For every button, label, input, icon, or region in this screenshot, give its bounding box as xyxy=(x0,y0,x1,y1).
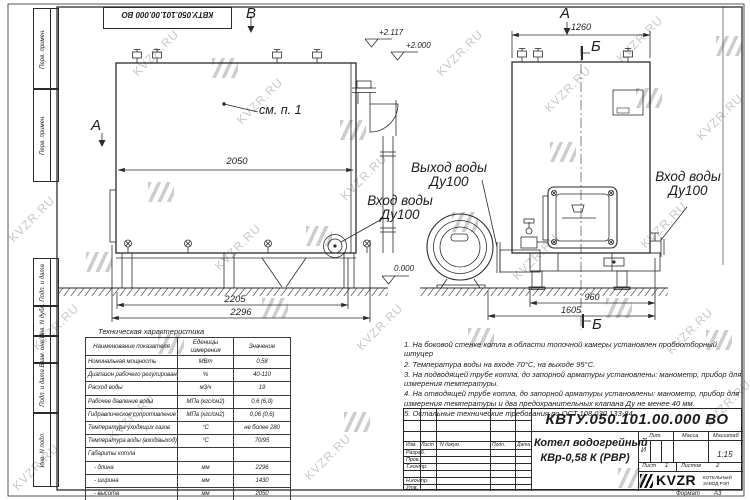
tb-doc-number: КВТУ.050.101.00.000 ВО xyxy=(531,409,743,433)
tb-col-data: Дата xyxy=(517,442,530,448)
top-doc-number: КВТУ.050.101.00.000 ВО xyxy=(104,10,231,19)
elevation-2000: +2.000 xyxy=(406,42,431,50)
tb-row-tkontr: Т.контр. xyxy=(406,464,427,470)
note-item: 3. На подводящей трубе котла, до запорно… xyxy=(404,370,742,389)
tb-lit-value: И xyxy=(641,447,646,454)
inlet-water-label-front: Вход водыДу100 xyxy=(646,170,730,198)
tb-sheet-value: 1 xyxy=(665,463,668,469)
table-row: Гидравлическое сопротивление котлаМПа (к… xyxy=(86,408,291,421)
table-row: - высотамм2050 xyxy=(86,487,291,500)
detail-reference: см. п. 1 xyxy=(259,104,302,117)
drawing-sheet: KVZR.RU KVZR.RU KVZR.RU KVZR.RU KVZR.RU … xyxy=(0,0,750,500)
strip-cell-perv-primen-1: Перв. примен. xyxy=(33,8,59,90)
tb-mass-label: Масса xyxy=(682,433,698,439)
tb-row-prov: Пров. xyxy=(406,457,420,463)
table-row: Температура уходящих газов°Сне более 280 xyxy=(86,421,291,434)
tb-row-utv: Утв. xyxy=(406,485,418,491)
dim-2205: 2205 xyxy=(210,295,260,305)
inlet-water-label-side: Вход водыДу100 xyxy=(358,194,442,222)
view-label-A-left: А xyxy=(91,118,101,134)
tb-col-izm: Изм. xyxy=(406,442,417,448)
tb-row-razrab: Разраб. xyxy=(406,450,425,456)
elevation-0000: 0.000 xyxy=(394,265,414,273)
table-row: Рабочее давление водыМПа (кгс/см2)0,6 (6… xyxy=(86,395,291,408)
tb-sheets-value: 2 xyxy=(716,463,719,469)
dim-2296: 2296 xyxy=(216,308,266,318)
spec-table: Наименование показателяЕденицы измерения… xyxy=(85,337,291,500)
strip-cell-podp-data-2: Подп. и дата xyxy=(33,362,59,414)
strip-cell-podp-data-1: Подп. и дата xyxy=(33,258,59,307)
view-arrows xyxy=(99,16,571,147)
note-item: 4. На отводящей трубе котла, до запорной… xyxy=(404,389,742,408)
kvzr-logo-text: KVZR xyxy=(656,472,696,488)
tb-row-nkontr: Н.контр. xyxy=(406,478,428,484)
dim-2050: 2050 xyxy=(214,157,260,167)
view-label-A-right: А xyxy=(560,6,570,22)
section-label-B-top: Б xyxy=(591,39,601,55)
tb-product-name: Котел водогрейный КВр-0,58 К (РВР) xyxy=(534,436,636,466)
tb-sheet-label: Лист xyxy=(642,463,656,469)
note-item: 1. На боковой стенке котла в области топ… xyxy=(404,340,742,359)
tb-lit-label: Лит. xyxy=(649,433,662,439)
tb-scale-value: 1:15 xyxy=(717,450,733,459)
table-row: Габариты котла xyxy=(86,448,291,461)
strip-cell-inv-dubl: Инв. N дубл. xyxy=(33,305,59,337)
title-block: Изм. Лист N докум. Подп. Дата Разраб. Пр… xyxy=(403,408,742,490)
side-view xyxy=(110,50,398,289)
note-item: 2. Температура воды на входе 70°С, на вы… xyxy=(404,360,742,369)
table-row: Расход водым3/ч19 xyxy=(86,382,291,395)
outlet-water-label: Выход водыДу100 xyxy=(403,161,495,189)
tb-col-list: Лист xyxy=(421,442,434,448)
table-row: Температура воды (вход/выход)°С70/95 xyxy=(86,435,291,448)
elevation-2117: +2.117 xyxy=(379,29,403,37)
table-row: - длинамм2296 xyxy=(86,461,291,474)
tb-col-podp: Подп. xyxy=(492,442,505,448)
top-doc-number-box: КВТУ.050.101.00.000 ВО xyxy=(103,7,232,29)
tb-scale-label: Масштаб xyxy=(713,433,739,439)
spec-header-row: Наименование показателяЕденицы измерения… xyxy=(86,338,291,356)
kvzr-company-name: КОТЕЛЬНЫЙ ЗАВОД РЭП xyxy=(703,475,732,486)
kvzr-logo-icon xyxy=(640,474,653,488)
strip-cell-perv-primen-2: Перв. примен. xyxy=(33,88,59,182)
dim-1605: 1605 xyxy=(545,306,597,315)
tb-sheets-label: Листов xyxy=(681,463,701,469)
strip-cell-inv-podl: Инв. N подл. xyxy=(33,412,59,487)
dim-960: 960 xyxy=(568,293,616,302)
spec-table-title: Техническая характеристика xyxy=(98,327,204,336)
format-value: А3 xyxy=(714,491,721,497)
section-label-B-bottom: Б xyxy=(592,317,602,333)
table-row: Диапазон рабочего регулирования%40-110 xyxy=(86,369,291,382)
strip-cell-vzam-inv: Взам. инв. N xyxy=(33,335,59,364)
view-label-B: В xyxy=(246,6,256,22)
dim-1260: 1260 xyxy=(557,23,605,32)
format-label: Формат xyxy=(676,491,700,497)
tb-col-ndok: N докум. xyxy=(440,442,460,448)
table-row: - ширинамм1430 xyxy=(86,474,291,487)
table-row: Номинальная мощностьМВт0,58 xyxy=(86,356,291,369)
